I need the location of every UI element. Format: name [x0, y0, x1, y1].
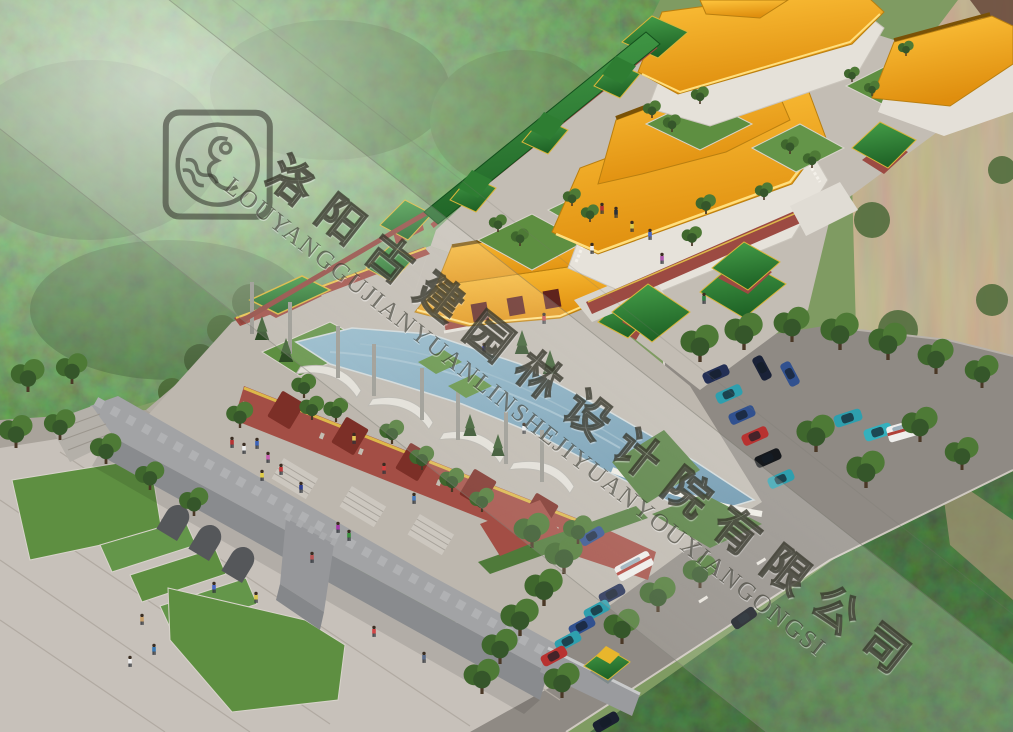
temple-complex-scene — [0, 0, 1013, 732]
architectural-rendering: 洛阳古建园林设计院有限公司 LOUYANGGUJIANYUANLINSHEJIY… — [0, 0, 1013, 732]
